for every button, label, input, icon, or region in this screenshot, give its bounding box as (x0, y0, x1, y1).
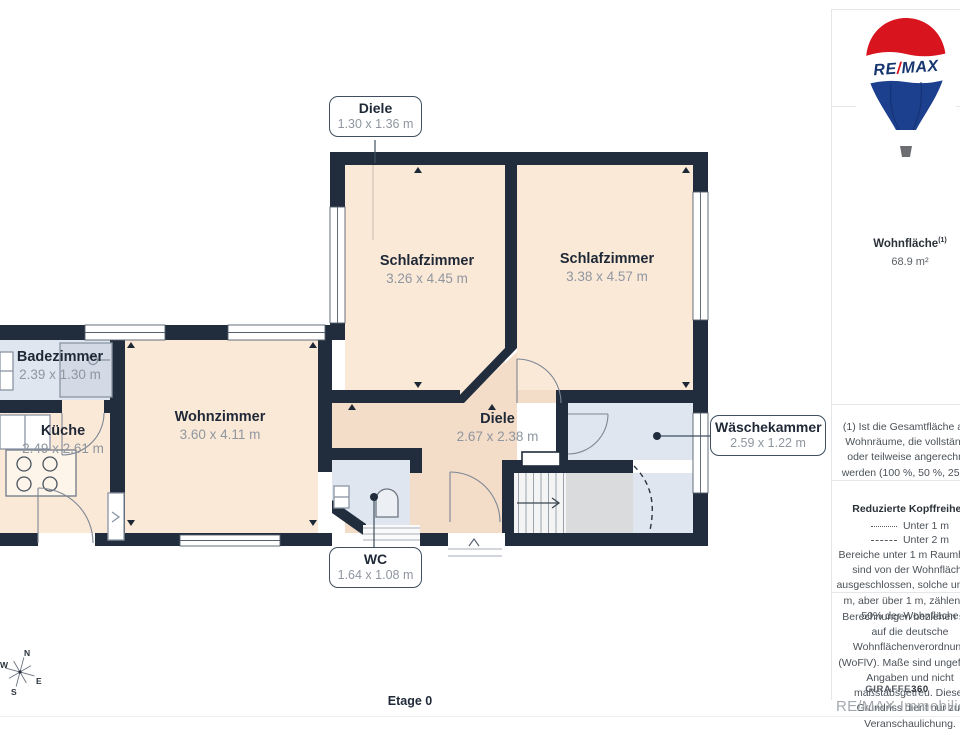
sidebar-divider-vertical (831, 9, 832, 700)
compass-w: W (0, 660, 9, 670)
window-icon (330, 207, 345, 323)
toilet-icon (376, 489, 398, 517)
floor-label: Etage 0 (330, 694, 490, 708)
compass-n: N (24, 648, 30, 658)
bath-sink-icon (0, 352, 13, 390)
legend-unter-2m: Unter 2 m (834, 533, 960, 548)
landing-floor (566, 473, 633, 533)
wohnflaeche-value: 68.9 m² (834, 255, 960, 271)
balloon-basket (900, 146, 912, 157)
compass-icon: N W E S (0, 648, 42, 697)
compass-e: E (36, 676, 42, 686)
shower-icon (60, 343, 112, 397)
sidebar-divider-top (831, 9, 960, 10)
window-icon (85, 325, 165, 340)
watermark: RE/MAX Immobilien De (836, 698, 960, 715)
remax-balloon-icon: RE/MAX (856, 14, 956, 164)
stove-icon (6, 450, 76, 496)
wohnflaeche-label: Wohnfläche(1) (834, 236, 960, 253)
wc-sink-icon (334, 486, 349, 508)
sidebar-footnote: (1) Ist die Gesamtfläche aller Wohnräume… (834, 420, 960, 481)
giraffe360-brand: GIRAFFE360 (838, 684, 956, 695)
window-icon (228, 325, 325, 340)
dashed-line-icon (871, 540, 897, 541)
window-icon (180, 535, 280, 546)
floorplan-drawing: N W E S (0, 0, 960, 720)
room-waeschekammer (568, 403, 693, 460)
radiator-icon (108, 493, 124, 540)
window-icon (693, 413, 708, 493)
callout-diele-top: Diele 1.30 x 1.36 m (329, 96, 422, 137)
sidebar-divider-2 (831, 404, 960, 405)
room-schlafzimmer-left (345, 165, 505, 403)
callout-wc: WC 1.64 x 1.08 m (329, 547, 422, 588)
compass-s: S (11, 687, 17, 697)
legend-unter-1m: Unter 1 m (834, 519, 960, 534)
callout-waeschekammer: Wäschekammer 2.59 x 1.22 m (710, 415, 826, 456)
kopffreiheit-title: Reduzierte Kopffreiheit (834, 502, 960, 517)
kitchen-counter-icon (0, 415, 50, 449)
window-icon (693, 192, 708, 320)
room-wohnzimmer (125, 340, 318, 533)
dotted-line-icon (871, 526, 897, 527)
bottom-rule (0, 716, 960, 717)
entrance-arrow-icon (469, 539, 479, 546)
stair-top-tread (522, 452, 560, 466)
remax-logo: RE/MAX (856, 14, 956, 164)
